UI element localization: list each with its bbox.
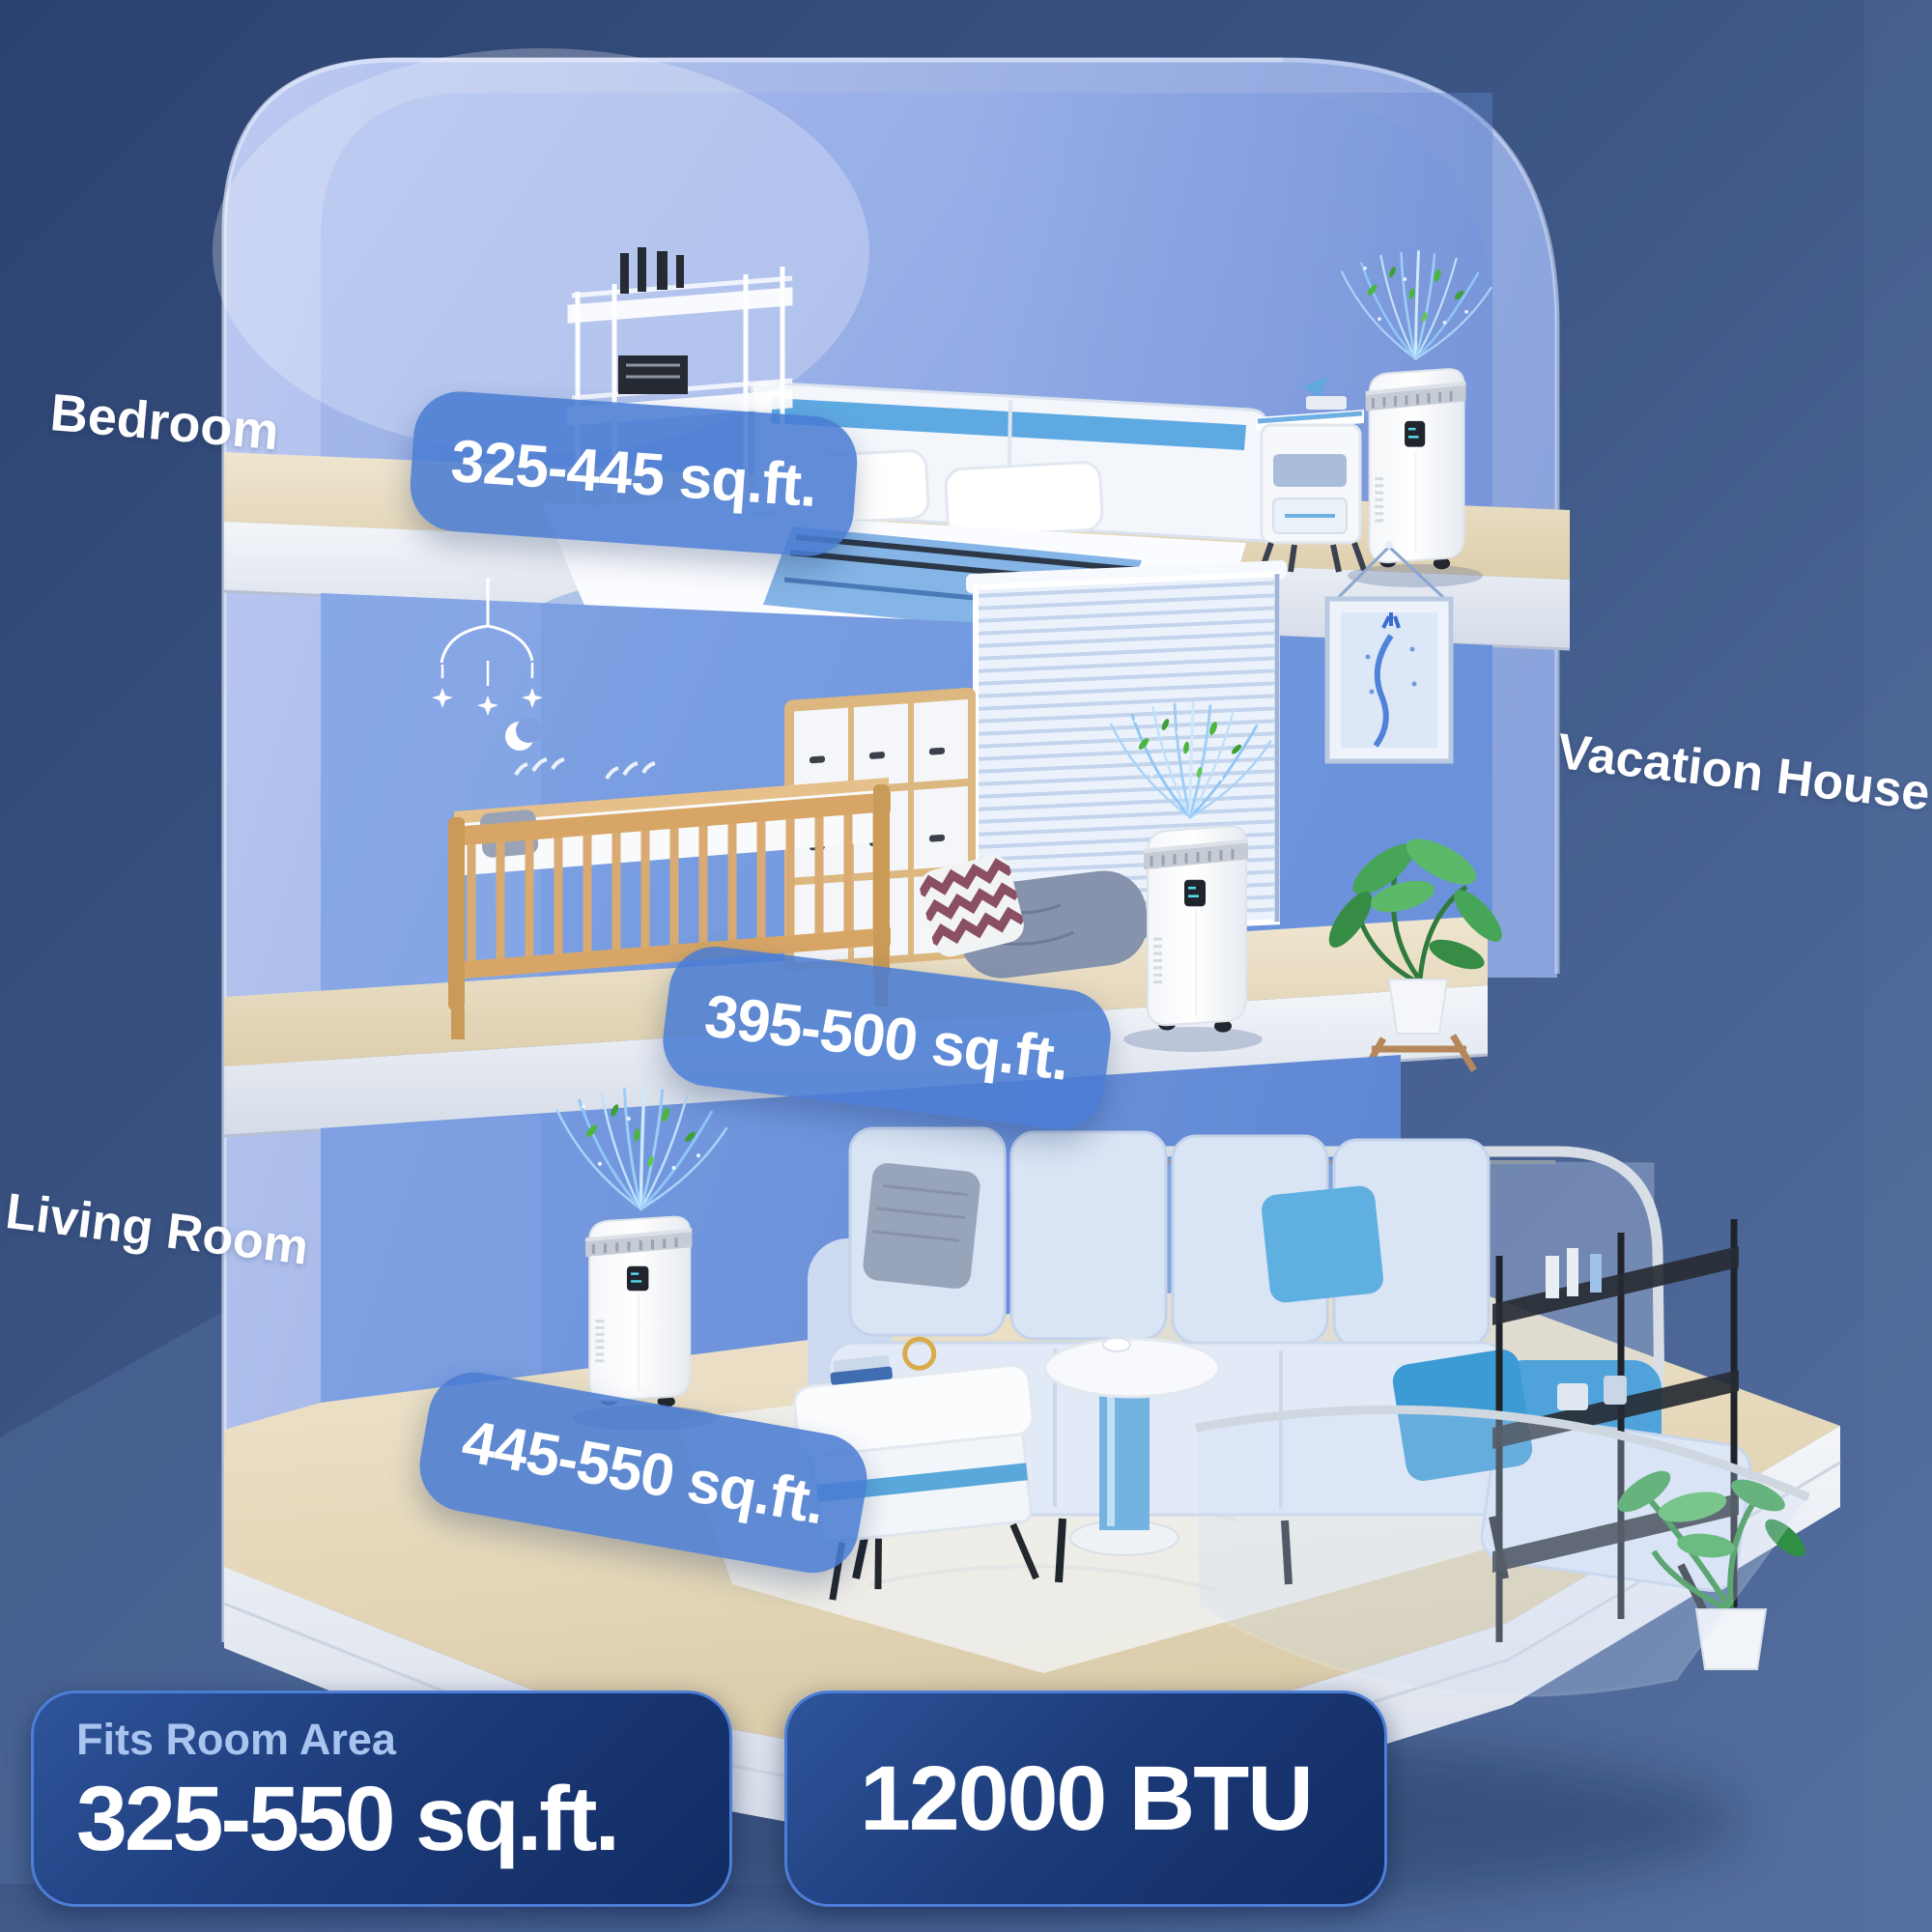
btu-value: 12000 BTU — [860, 1747, 1312, 1852]
background-right-band — [1864, 0, 1932, 1932]
fits-room-area-title: Fits Room Area — [76, 1715, 729, 1765]
house-cutaway-illustration — [0, 0, 1932, 1932]
throw-pillow-gray — [862, 1161, 981, 1290]
fits-room-area-pill: Fits Room Area 325-550 sq.ft. — [31, 1690, 732, 1907]
product-infographic: Bedroom Vacation House Living Room 325-4… — [0, 0, 1932, 1932]
portable-ac-unit — [585, 1217, 692, 1407]
throw-pillow-lightblue — [1260, 1184, 1384, 1304]
portable-ac-unit — [1366, 369, 1466, 569]
btu-pill: 12000 BTU — [784, 1690, 1387, 1907]
portable-ac-unit — [1144, 826, 1248, 1032]
fits-room-area-value: 325-550 sq.ft. — [76, 1767, 729, 1872]
